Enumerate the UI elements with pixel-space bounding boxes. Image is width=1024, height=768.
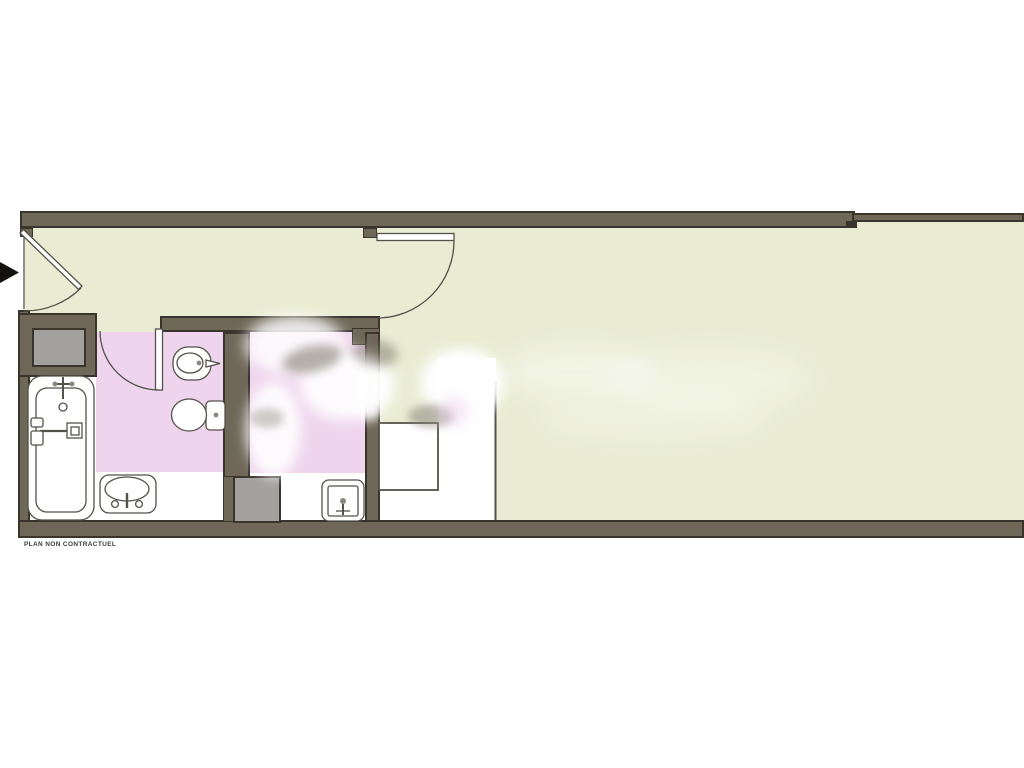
utility-shaft-icon bbox=[32, 328, 86, 367]
bathroom-floor bbox=[96, 332, 223, 472]
exterior-wall-bottom bbox=[18, 520, 1024, 538]
exterior-wall-top-left bbox=[20, 211, 855, 228]
watermark-smudge-pink bbox=[438, 396, 468, 426]
exterior-wall-top-right bbox=[852, 213, 1024, 222]
hall-door-jamb bbox=[363, 228, 377, 238]
bathtub-alcove-floor bbox=[26, 372, 96, 522]
bathroom-wc-divider-wall bbox=[223, 332, 250, 478]
wall-step-notch bbox=[846, 221, 857, 228]
plan-disclaimer-text: PLAN NON CONTRACTUEL bbox=[24, 541, 116, 548]
watermark-smudge-dark bbox=[250, 408, 284, 428]
entrance-arrow-icon bbox=[0, 262, 19, 283]
watermark-smudge bbox=[246, 382, 301, 477]
floor-plan: PLAN NON CONTRACTUEL bbox=[0, 0, 1024, 768]
watermark-smudge-faint bbox=[540, 395, 770, 440]
watermark-smudge bbox=[356, 358, 384, 420]
washbasin-area-floor bbox=[96, 472, 223, 522]
entrance-door-jamb bbox=[20, 228, 33, 237]
utility-shaft-2-icon bbox=[233, 476, 281, 523]
